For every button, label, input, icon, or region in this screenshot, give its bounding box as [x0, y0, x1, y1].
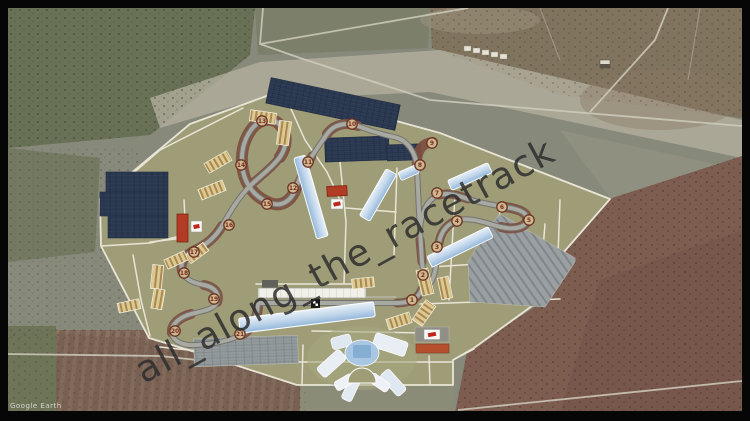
terrain-topmid	[255, 8, 430, 55]
welcome-center	[415, 327, 449, 353]
red-building	[177, 214, 188, 242]
corner-number: 3	[435, 244, 439, 251]
corner-number: 4	[455, 218, 459, 225]
pit-building	[258, 288, 366, 298]
building-glass-roof	[353, 345, 371, 358]
service-building	[262, 280, 278, 289]
corner-number: 15	[263, 201, 271, 208]
corner-number: 17	[190, 249, 198, 256]
corner-number: 18	[180, 270, 188, 277]
corner-number: 19	[210, 296, 218, 303]
corner-number: 2	[421, 272, 425, 279]
corner-number: 14	[237, 162, 245, 169]
grandstand	[352, 277, 375, 289]
satellite-map: 123456789101112131415161718192021	[0, 0, 750, 421]
farm-building-roof	[600, 64, 610, 68]
corner-number: 12	[289, 185, 297, 192]
start-finish-icon	[311, 299, 320, 308]
parking-lot-south	[194, 335, 299, 367]
corner-number: 11	[304, 159, 312, 166]
corner-number: 21	[236, 331, 244, 338]
corner-number: 5	[527, 217, 531, 224]
corner-number: 9	[430, 140, 434, 147]
red-building	[416, 344, 449, 353]
solar-array-west	[100, 172, 168, 238]
grandstand	[150, 264, 163, 289]
corner-number: 13	[258, 118, 266, 125]
map-credit: Google Earth	[10, 402, 62, 410]
circuit-logo-sign	[191, 221, 202, 232]
corner-number: 10	[348, 121, 356, 128]
corner-number: 20	[171, 328, 179, 335]
corner-number: 1	[410, 297, 414, 304]
corner-number: 16	[225, 222, 233, 229]
corner-number: 8	[418, 162, 422, 169]
corner-number: 6	[500, 204, 504, 211]
corner-number: 7	[435, 190, 439, 197]
circuit-logo-sign	[331, 199, 343, 209]
map-viewport: 123456789101112131415161718192021 all_al…	[0, 0, 750, 421]
red-building	[327, 185, 347, 196]
